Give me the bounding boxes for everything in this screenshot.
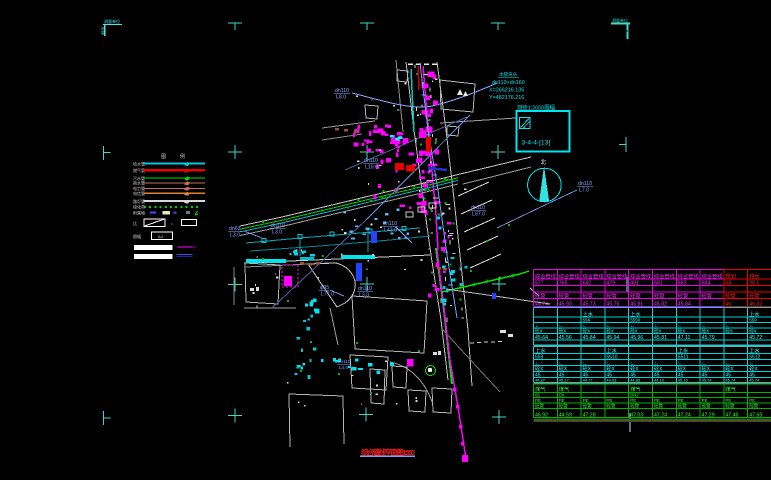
svg-text:上水: 上水 bbox=[678, 346, 689, 354]
svg-text:砼管: 砼管 bbox=[606, 402, 615, 409]
svg-text:L97.0: L97.0 bbox=[472, 212, 485, 218]
svg-text:L77.0: L77.0 bbox=[321, 292, 334, 298]
svg-text:PE: PE bbox=[606, 398, 612, 403]
svg-text:砼管: 砼管 bbox=[654, 402, 663, 409]
svg-text:dn110: dn110 bbox=[338, 359, 351, 364]
svg-text:砼X: 砼X bbox=[583, 365, 592, 372]
svg-text:砼管: 砼管 bbox=[725, 291, 735, 299]
svg-text:642: 642 bbox=[583, 280, 592, 286]
svg-text:DN2: DN2 bbox=[630, 392, 639, 397]
svg-text:砼X: 砼X bbox=[678, 327, 686, 333]
svg-text:PE: PE bbox=[725, 398, 731, 403]
svg-text:65: 65 bbox=[535, 392, 540, 397]
svg-text:砼管: 砼管 bbox=[583, 402, 592, 409]
svg-text:燃气管: 燃气管 bbox=[133, 167, 145, 173]
svg-text:581: 581 bbox=[654, 280, 663, 286]
svg-text:砼管: 砼管 bbox=[725, 402, 734, 409]
svg-text:=: = bbox=[171, 221, 174, 226]
svg-text:765: 765 bbox=[559, 280, 568, 286]
svg-text:46.92: 46.92 bbox=[535, 412, 548, 418]
svg-text:∟: ∟ bbox=[535, 323, 539, 328]
svg-text:L43.0: L43.0 bbox=[384, 228, 397, 234]
svg-text:砼X: 砼X bbox=[606, 327, 614, 333]
svg-text:L3.0: L3.0 bbox=[230, 233, 240, 239]
svg-text:∟: ∟ bbox=[678, 323, 682, 328]
svg-text:绿化带: 绿化带 bbox=[133, 204, 145, 210]
svg-text:20.1: 20.1 bbox=[749, 280, 759, 286]
svg-text:44.59: 44.59 bbox=[559, 412, 572, 418]
svg-text:砼管: 砼管 bbox=[559, 291, 569, 299]
svg-text:砼X: 砼X bbox=[678, 365, 687, 372]
svg-text:45.73: 45.73 bbox=[583, 301, 596, 307]
svg-text:砼X: 砼X bbox=[654, 327, 662, 333]
svg-text:45.84: 45.84 bbox=[583, 335, 596, 341]
svg-text:45.79: 45.79 bbox=[702, 335, 715, 341]
svg-text:综合管线: 综合管线 bbox=[630, 272, 651, 280]
svg-text:砼管: 砼管 bbox=[606, 291, 616, 299]
svg-text:5550: 5550 bbox=[630, 317, 641, 322]
svg-text:例: 例 bbox=[180, 153, 185, 160]
svg-text:47.46: 47.46 bbox=[725, 412, 738, 418]
svg-text:47.11: 47.11 bbox=[678, 335, 691, 341]
svg-text:砼管: 砼管 bbox=[749, 402, 758, 409]
svg-text:砼X: 砼X bbox=[535, 365, 544, 372]
svg-text:综合管线: 综合管线 bbox=[606, 272, 627, 280]
svg-text:电信管: 电信管 bbox=[133, 190, 145, 196]
svg-text:47.63: 47.63 bbox=[749, 412, 762, 418]
svg-text:综合管线: 综合管线 bbox=[535, 272, 556, 280]
svg-text:北: 北 bbox=[541, 158, 547, 166]
svg-text:45.81: 45.81 bbox=[630, 301, 643, 307]
svg-text:47.03: 47.03 bbox=[630, 412, 643, 418]
svg-text:45.64: 45.64 bbox=[535, 335, 548, 341]
svg-text:L8.0: L8.0 bbox=[336, 95, 346, 101]
svg-text:比: 比 bbox=[133, 220, 137, 226]
svg-text:给水管: 给水管 bbox=[133, 160, 145, 166]
svg-text:47.24: 47.24 bbox=[654, 412, 667, 418]
svg-text:砼X: 砼X bbox=[725, 327, 733, 333]
svg-text:砼X: 砼X bbox=[702, 327, 710, 333]
svg-text:584: 584 bbox=[702, 280, 711, 286]
svg-text:45.76: 45.76 bbox=[606, 301, 619, 307]
svg-text:577: 577 bbox=[535, 280, 544, 286]
svg-text:44.87: 44.87 bbox=[535, 377, 546, 382]
svg-text:砼管: 砼管 bbox=[749, 291, 759, 299]
svg-text:砼X: 砼X bbox=[749, 327, 757, 333]
svg-text:煤气: 煤气 bbox=[725, 385, 735, 393]
svg-text:PE: PE bbox=[654, 398, 660, 403]
svg-text:44.83: 44.83 bbox=[630, 377, 641, 382]
svg-text:测量单位: 测量单位 bbox=[104, 18, 120, 24]
svg-text:45.94: 45.94 bbox=[606, 335, 619, 341]
svg-text:∟: ∟ bbox=[702, 323, 706, 328]
svg-text:45.10: 45.10 bbox=[678, 377, 689, 382]
svg-text:dn110×dn160: dn110×dn160 bbox=[492, 80, 525, 86]
svg-text:X=266216.136: X=266216.136 bbox=[489, 88, 524, 94]
svg-text:44.93: 44.93 bbox=[606, 377, 617, 382]
svg-text:∟: ∟ bbox=[559, 323, 563, 328]
svg-text:砼管: 砼管 bbox=[559, 402, 568, 409]
svg-text:图: 图 bbox=[161, 154, 166, 160]
svg-text:上水: 上水 bbox=[606, 346, 617, 354]
svg-text:砼管: 砼管 bbox=[678, 291, 688, 299]
svg-text:PE: PE bbox=[749, 398, 755, 403]
svg-text:规划: 规划 bbox=[725, 272, 735, 280]
svg-text:45.17: 45.17 bbox=[559, 377, 570, 382]
svg-text:479: 479 bbox=[606, 280, 615, 286]
svg-text:砼管: 砼管 bbox=[630, 402, 639, 409]
svg-text:图幅: 图幅 bbox=[133, 233, 141, 239]
svg-text:测量单位: 测量单位 bbox=[612, 17, 628, 23]
svg-text:砼X: 砼X bbox=[559, 327, 567, 333]
svg-text:64: 64 bbox=[725, 280, 731, 286]
svg-text:46: 46 bbox=[725, 301, 731, 307]
svg-text:47.24: 47.24 bbox=[678, 412, 691, 418]
svg-text:3-4-4-[13]: 3-4-4-[13] bbox=[522, 140, 551, 147]
svg-text:砼X: 砼X bbox=[654, 365, 663, 372]
svg-text:PE: PE bbox=[583, 398, 589, 403]
svg-text:PE: PE bbox=[630, 398, 636, 403]
svg-text:44.10: 44.10 bbox=[654, 377, 665, 382]
svg-text:砼X: 砼X bbox=[583, 327, 591, 333]
svg-text:路灯管: 路灯管 bbox=[133, 198, 145, 204]
svg-text:∟: ∟ bbox=[583, 323, 587, 328]
svg-text:45.96: 45.96 bbox=[630, 335, 643, 341]
svg-text:砼管: 砼管 bbox=[678, 402, 687, 409]
svg-text:46.02: 46.02 bbox=[749, 301, 762, 307]
svg-text:砼X: 砼X bbox=[630, 327, 638, 333]
svg-text:45.81: 45.81 bbox=[654, 335, 667, 341]
svg-text:A4: A4 bbox=[158, 234, 164, 239]
svg-text:砼X: 砼X bbox=[630, 365, 639, 372]
svg-text:45.74: 45.74 bbox=[702, 377, 713, 382]
svg-text:雨水管: 雨水管 bbox=[133, 180, 145, 186]
svg-text:砼管: 砼管 bbox=[583, 291, 593, 299]
svg-text:∟: ∟ bbox=[725, 323, 729, 328]
svg-text:砼X: 砼X bbox=[725, 365, 734, 372]
svg-text:综合管线: 综合管线 bbox=[583, 272, 604, 280]
svg-text:排水: 排水 bbox=[749, 272, 760, 280]
svg-text:综合管线: 综合管线 bbox=[678, 272, 699, 280]
svg-text:量: 量 bbox=[101, 30, 105, 35]
svg-text:∟: ∟ bbox=[606, 323, 610, 328]
svg-text:砼管: 砼管 bbox=[654, 291, 664, 299]
svg-text:上水: 上水 bbox=[749, 346, 760, 354]
svg-text:砼管: 砼管 bbox=[535, 291, 545, 299]
svg-text:砼X: 砼X bbox=[606, 365, 615, 372]
svg-text:砼管: 砼管 bbox=[702, 291, 712, 299]
svg-text:556: 556 bbox=[583, 317, 591, 322]
svg-text:45.82: 45.82 bbox=[654, 301, 667, 307]
svg-text:45.84: 45.84 bbox=[678, 301, 691, 307]
svg-text:45.93: 45.93 bbox=[559, 301, 572, 307]
svg-text:550: 550 bbox=[749, 317, 757, 322]
svg-text:582: 582 bbox=[678, 280, 687, 286]
svg-text:综合管线: 综合管线 bbox=[559, 272, 580, 280]
svg-text:D0: D0 bbox=[559, 392, 565, 397]
svg-text:∟: ∟ bbox=[630, 323, 634, 328]
svg-text:综合管线: 综合管线 bbox=[702, 272, 723, 280]
svg-text:PE: PE bbox=[678, 398, 684, 403]
svg-text:砼X: 砼X bbox=[535, 327, 543, 333]
svg-text:砼管: 砼管 bbox=[630, 291, 640, 299]
svg-text:45.74: 45.74 bbox=[725, 377, 736, 382]
svg-text:L19.0: L19.0 bbox=[365, 165, 378, 171]
svg-text:砼X: 砼X bbox=[702, 365, 711, 372]
svg-text:∟: ∟ bbox=[654, 323, 658, 328]
svg-text:Y=482176.216: Y=482176.216 bbox=[489, 95, 524, 101]
svg-text:电力管: 电力管 bbox=[133, 185, 145, 191]
svg-text:砼管: 砼管 bbox=[702, 402, 711, 409]
svg-text:PE: PE bbox=[559, 398, 565, 403]
svg-text:砼管: 砼管 bbox=[535, 402, 544, 409]
svg-text:PE: PE bbox=[702, 398, 708, 403]
svg-text:附属物: 附属物 bbox=[133, 210, 145, 216]
svg-text:砼X: 砼X bbox=[749, 365, 758, 372]
svg-text:45.74: 45.74 bbox=[749, 377, 760, 382]
svg-text:45.56: 45.56 bbox=[559, 335, 572, 341]
svg-text:L3.0: L3.0 bbox=[359, 293, 369, 299]
svg-text:L3.0: L3.0 bbox=[272, 230, 282, 236]
svg-text:L4.0: L4.0 bbox=[339, 365, 348, 370]
svg-text:47.29: 47.29 bbox=[702, 412, 715, 418]
svg-text:47.28: 47.28 bbox=[583, 412, 596, 418]
svg-text:44.77: 44.77 bbox=[583, 377, 594, 382]
svg-text:45.72: 45.72 bbox=[749, 335, 762, 341]
svg-text:∟: ∟ bbox=[749, 323, 753, 328]
svg-text:PE: PE bbox=[535, 398, 541, 403]
svg-text:L7.0: L7.0 bbox=[579, 188, 589, 194]
svg-text:综合管线: 综合管线 bbox=[654, 272, 675, 280]
svg-text:砼X: 砼X bbox=[559, 365, 568, 372]
svg-text:491: 491 bbox=[630, 280, 639, 286]
svg-text:上水: 上水 bbox=[535, 346, 546, 354]
svg-text:45.74: 45.74 bbox=[535, 301, 548, 307]
